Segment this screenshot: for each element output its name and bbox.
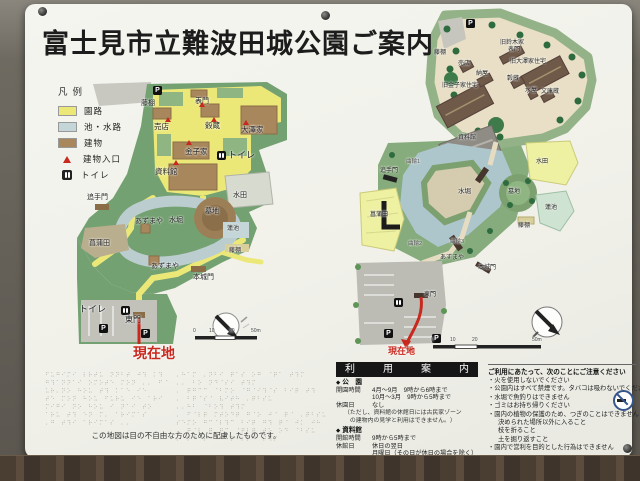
map-label: 20 [472, 338, 478, 343]
legend-items: 園路池・水路建物建物入口トイレ [58, 103, 122, 183]
map-label: 納屋 [476, 71, 488, 77]
map-label: 藤棚 [434, 50, 446, 56]
braille-line: ⠍⠊⠛⠊⠀⠝⠕⠀⠓⠕⠥⠀⠊⠀⠝⠁⠊⠀⠞⠕ [45, 404, 175, 412]
parking-icon: P [141, 329, 150, 338]
map-label: 資料館 [458, 135, 476, 141]
park-sign-photo: { "sign": { "title": "富士見市立難波田城公園ご案内" },… [0, 0, 640, 480]
legend-label: 建物 [84, 137, 103, 149]
map-label: 大澤家 [241, 126, 264, 134]
braille-line: ⠥⠗⠄⠝⠕⠀⠓⠕⠥⠀⠞⠹⠀⠅⠁⠑⠀⠊⠑ [45, 388, 175, 396]
info-value: なし [372, 402, 482, 409]
usage-guide: 利 用 案 内 公 園 開園時間4月～9月 9時から6時まで10月～3月 9時か… [336, 362, 482, 465]
map-label: 菖蒲田 [370, 212, 388, 218]
info-key: 休園日 [336, 402, 369, 409]
notice-item: ・園内の植物の保護のため、つぎのことはできません [488, 411, 636, 419]
braille-line: ⠄⠀⠟⠛⠉⠉⠀⠈⠃⠍⠕⠀⠈⠛⠈⠊⠹⠈⠎⠀⠃⠊⠟⠀⠞⠹ [176, 388, 326, 396]
map-label: 金子家 [185, 148, 208, 156]
map-label: 資料館 [155, 168, 178, 176]
braille-line: ⠄⠄⠀⠃⠕⠀⠝⠙⠈⠎⠊⠀⠞⠹⠍ [176, 380, 326, 388]
legend: 凡例 園路池・水路建物建物入口トイレ [58, 84, 122, 183]
map-label: 水屋 [525, 88, 537, 94]
info-value: 10月～3月 9時から5時まで [372, 394, 482, 401]
map-label: 本城門 [193, 274, 214, 281]
screw-icon [321, 11, 330, 20]
info-key: 開園時間 [336, 387, 369, 394]
map-label: 藤棚 [518, 223, 530, 229]
notice-item: ・公園内はすべて禁煙です。タバコは吸わないでください [488, 385, 636, 393]
map-label: 0 [431, 338, 434, 343]
tactile-map-note: この地図は目の不自由な方のために配慮したものです。 [50, 430, 322, 441]
map-label: 旧金子家住宅 [442, 83, 478, 89]
map-label: あずまや [135, 218, 163, 225]
legend-heading: 凡例 [58, 84, 122, 98]
map-label: 10 [450, 338, 456, 343]
no-smoking-icon [613, 390, 634, 411]
braille-line: ⠞⠑⠀⠍⠕⠝⠀⠓⠕⠥⠀⠋⠥⠗⠥⠀⠊⠑⠀⠁⠗⠊ [45, 396, 175, 404]
map-label: 水田 [233, 192, 247, 199]
map-label: 旧大澤家住宅 [510, 59, 546, 65]
legend-item: 建物入口 [58, 151, 122, 167]
info-key: 開館時間 [336, 435, 369, 442]
toilet-icon [394, 298, 403, 307]
map-label: 水田 [536, 159, 548, 165]
map-label: 藤棚 [229, 248, 241, 254]
info-value: 9時から5時まで [372, 435, 482, 442]
map-label: トイレ [228, 151, 255, 160]
section-note: （ただし、資料館の休館日には古民家ゾーン [344, 410, 482, 417]
entrance-triangle-icon [173, 160, 179, 165]
notice-item: 枝を折ること [488, 427, 636, 435]
info-key [336, 394, 369, 401]
map-label: 菖蒲田 [89, 240, 110, 247]
legend-item: 建物 [58, 135, 122, 151]
parking-icon: P [466, 19, 475, 28]
map-label: 50m [251, 329, 261, 334]
map-label: 0 [193, 329, 196, 334]
map-label: 藤棚 [141, 100, 155, 107]
notice-list: ・火を使用しないでください・公園内はすべて禁煙です。タバコは吸わないでください・… [488, 377, 636, 453]
legend-swatch [58, 106, 77, 116]
map-label: 蓮池 [227, 226, 239, 232]
map-label: 曲輪2 [408, 242, 422, 248]
braille-line: ⠄⠀⠋⠈⠇⠟⠀⠍⠞⠕⠙⠟⠀⠛⠈⠕⠀⠚⠈⠀⠟⠈⠀⠄⠟⠃⠎⠥⠀⠤⠤ [176, 412, 326, 420]
usage-section-park: 公 園 開園時間4月～9月 9時から6時まで10月～3月 9時から5時まで休園日… [336, 379, 482, 425]
legend-item: 池・水路 [58, 119, 122, 135]
screw-icon [38, 7, 47, 16]
map-label: 現在地 [388, 347, 415, 356]
entrance-triangle-icon [186, 140, 192, 145]
braille-line: ⠄⠀⠃⠟⠈⠎⠈⠀⠧⠊⠞⠓⠀⠄⠟⠃⠎⠥ [176, 396, 326, 404]
map-label: 東門 [125, 316, 141, 324]
map-label: あずまや [151, 263, 179, 270]
map-label: 東門 [424, 292, 436, 298]
screw-icon [623, 444, 632, 453]
map-label: 穀蔵 [507, 76, 519, 82]
section-note: の建物内の見学と利用はできません。） [344, 418, 482, 425]
entrance-triangle-icon [211, 117, 217, 122]
map-label: 50m [532, 338, 542, 343]
info-value: 4月～9月 9時から6時まで [372, 387, 482, 394]
braille-line: ⠛⠹⠁⠝⠝⠁⠊⠀⠕⠍⠕⠞⠑⠀⠍⠕⠝⠀⠄⠄⠀⠋⠈ [45, 380, 175, 388]
toilet-icon [121, 306, 130, 315]
map-label: 旧鈴木家 [500, 40, 524, 46]
braille-line: ⠋⠥⠛⠊⠍⠊⠀⠇⠗⠞⠥⠀⠝⠝⠃⠞⠀⠚⠹⠀⠅⠹ [45, 372, 175, 380]
legend-item: トイレ [58, 167, 122, 183]
map-label: 水堀 [169, 217, 183, 224]
map-label: トイレ [79, 305, 106, 314]
map-label: 曲輪1 [406, 160, 420, 166]
notice-item: 土を掘り返すこと [488, 436, 636, 444]
toilet-icon [62, 170, 72, 180]
parking-icon: P [153, 86, 162, 95]
braille-line: ⠄⠄⠓⠃⠀⠈⠃⠕⠹⠀⠞⠹⠍ [176, 404, 326, 412]
notice-item: ・園内で営利を目的とした行為はできません [488, 444, 636, 452]
map-label: 表門 [508, 47, 520, 53]
legend-label: トイレ [81, 169, 110, 181]
section-rows: 開園時間4月～9月 9時から6時まで10月～3月 9時から5時まで休園日なし [336, 387, 482, 409]
info-value: 休日の翌日 [372, 443, 482, 450]
toilet-icon [217, 151, 226, 160]
map-label: 10 [209, 329, 215, 334]
map-label: 追手門 [380, 168, 398, 174]
entrance-triangle-icon [165, 117, 171, 122]
map-label: 売店 [458, 61, 470, 67]
entrance-triangle-icon [63, 156, 71, 163]
parking-icon: P [99, 324, 108, 333]
map-label: 現在地 [133, 346, 175, 360]
map-label: あずまや [440, 255, 464, 261]
legend-swatch [58, 138, 77, 148]
braille-line: ⠁⠗⠥⠀⠞⠹⠀⠑⠝⠀⠍⠄⠀⠁⠗⠊⠍⠁⠎ [45, 412, 175, 420]
entrance-triangle-icon [243, 120, 249, 125]
usage-guide-header: 利 用 案 内 [336, 362, 478, 377]
legend-label: 池・水路 [84, 121, 122, 133]
map-label: 本城門 [478, 265, 496, 271]
braille-line: ⠎⠑⠍⠕⠀⠛⠉⠈⠇⠹⠉⠀⠃⠊⠟⠀⠛⠹⠀⠟⠈⠀⠚⠅⠀⠚⠓⠀⠛⠅⠟⠎⠀⠕⠛ [176, 420, 326, 428]
map-label: 水堀 [458, 189, 471, 196]
map-label: 売店 [154, 123, 169, 131]
map-label: 墓地 [508, 189, 520, 195]
notice-heading: ご利用にあたって、次のことにご注意ください [488, 364, 636, 377]
legend-label: 園路 [84, 105, 103, 117]
map-label: 蓮池 [545, 205, 557, 211]
braille-block-left: ⠋⠥⠛⠊⠍⠊⠀⠇⠗⠞⠥⠀⠝⠝⠃⠞⠀⠚⠹⠀⠅⠹⠛⠹⠁⠝⠝⠁⠊⠀⠕⠍⠕⠞⠑⠀⠍⠕⠝⠀… [45, 372, 175, 428]
legend-item: 園路 [58, 103, 122, 119]
map-label: 20 [229, 329, 235, 334]
braille-line: ⠄⠛⠀⠞⠹⠊⠀⠁⠗⠊⠍⠁⠎⠀⠄⠄ [45, 420, 175, 428]
legend-swatch [58, 122, 77, 132]
entrance-triangle-icon [199, 102, 205, 107]
legend-label: 建物入口 [83, 153, 121, 165]
map-label: 文庫蔵 [541, 89, 559, 95]
sign-title: 富士見市立難波田城公園ご案内 [42, 22, 434, 61]
map-label: 追手門 [87, 194, 108, 201]
parking-icon: P [384, 329, 393, 338]
map-label: 穀蔵 [205, 122, 220, 130]
map-label: 曲輪3 [450, 240, 464, 246]
info-key: 休館日 [336, 443, 369, 450]
notice-column: ご利用にあたって、次のことにご注意ください ・火を使用しないでください・公園内は… [488, 364, 636, 453]
wood-post [0, 455, 640, 481]
map-label: 墓地 [205, 208, 219, 215]
braille-line: ⠄⠓⠁⠍⠀⠄⠝⠃⠊⠀⠟⠁⠎⠀⠕⠛⠀⠈⠟⠁⠀⠞⠹⠍ [176, 372, 326, 380]
section-name: 公 園 [336, 379, 482, 387]
